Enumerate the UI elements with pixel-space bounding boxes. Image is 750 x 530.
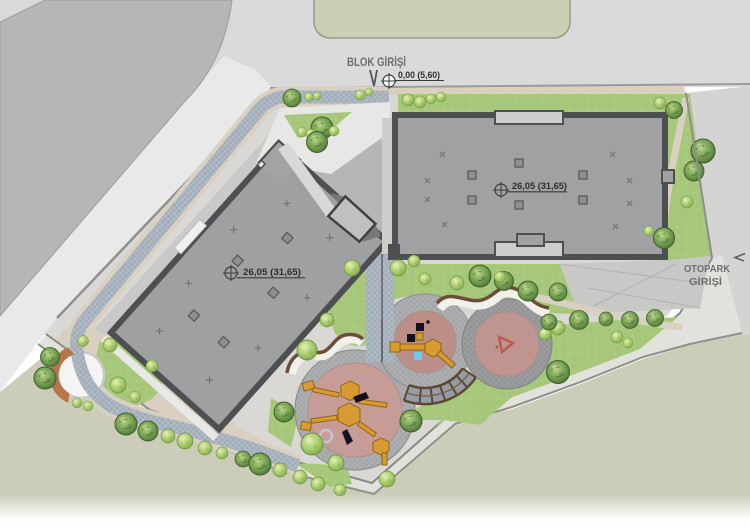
svg-text:GİRİŞİ: GİRİŞİ (689, 275, 722, 288)
svg-text:BLOK GİRİŞİ: BLOK GİRİŞİ (347, 54, 406, 69)
svg-text:26,05 (31,65): 26,05 (31,65) (512, 181, 567, 191)
svg-text:OTOPARK: OTOPARK (684, 264, 731, 275)
svg-text:26,05 (31,65): 26,05 (31,65) (243, 267, 301, 277)
svg-text:0,00 (5,60): 0,00 (5,60) (398, 70, 440, 80)
